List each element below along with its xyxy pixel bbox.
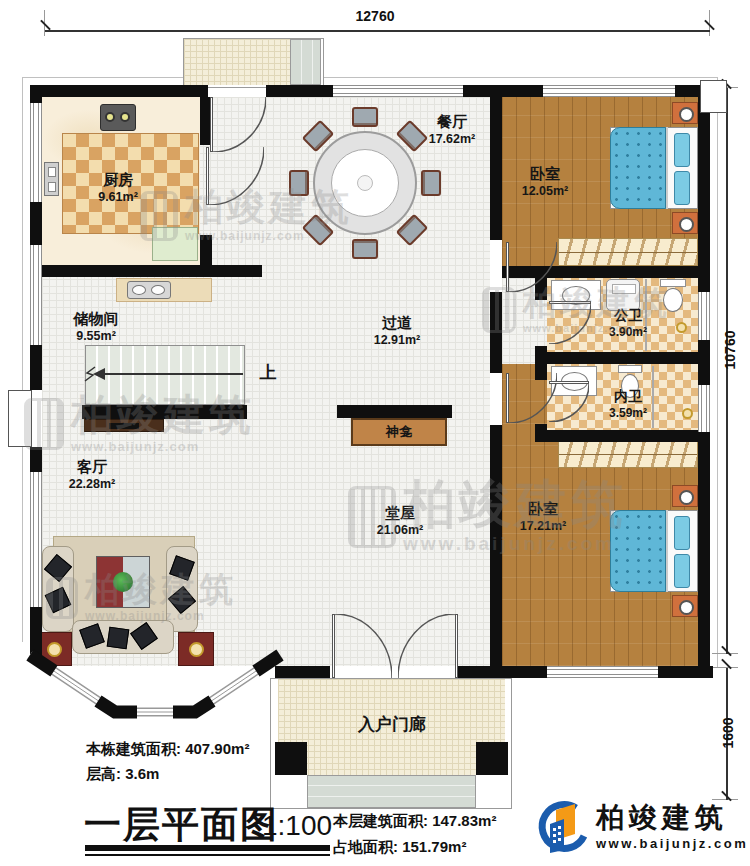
floor-area-label: 本层建筑面积: [333,812,428,829]
brand-logo-text: 柏竣建筑 [596,804,748,832]
floor-height-text: 层高: 3.6m [86,765,159,784]
entry-door-left-arc [335,614,392,678]
kitchen-sink-icon [44,162,59,196]
toilet-icon [660,279,686,287]
room-name: 卧室 [520,500,567,519]
window [30,103,42,202]
room-area: 17.21m² [520,519,567,535]
dimension-line-top [45,30,710,32]
wall-shrine [337,405,452,418]
eave-line-right [717,77,718,667]
room-name: 厨房 [98,171,138,190]
dim-tick [40,20,51,31]
toilet-bowl [663,288,683,312]
total-area-value: 407.90m² [185,740,249,757]
room-label-living: 客厅 22.28m² [69,458,116,492]
wall-publicbath-left [535,346,547,352]
stair-break-icon [84,366,96,382]
title-underline-thin [85,854,330,856]
dining-chair [289,170,309,196]
stove-icon [100,104,136,131]
back-porch [183,38,324,88]
total-area-label: 本栋建筑面积: [86,740,181,757]
nightstand [672,212,698,234]
kitchen-cabinet [152,227,198,261]
room-label-main-hall: 堂屋 21.06m² [377,504,424,538]
room-area: 12.91m² [374,333,421,349]
ensuite-door-arc [549,384,589,422]
burner-icon [105,112,115,122]
floor-height-label: 层高: [86,765,121,782]
tv-console [84,419,164,432]
wall-center-vertical [490,292,502,373]
shower-partition [652,366,654,428]
bed-pillow [674,516,690,550]
floor-plan-canvas: 12760 10760 1600 [0,0,750,866]
porch-steps [307,775,476,808]
toilet-icon [618,365,642,373]
room-area: 9.61m² [98,190,138,206]
eave-line-left [22,77,23,642]
title-underline-thick [85,845,330,851]
window [698,292,710,340]
tv-icon [109,423,139,429]
wall-niche [8,390,32,447]
room-area: 3.90m² [609,325,647,340]
brand-logo-url: www.baijunjz.com [596,836,748,851]
bed-sheet-line [666,127,668,209]
nightstand [672,595,698,617]
wall-exterior-left [30,345,42,390]
room-area: 9.55m² [74,329,119,345]
wall-bath-divider [535,352,710,364]
back-porch-floor [184,39,290,85]
window [30,245,42,345]
stairs-up-text: 上 [260,362,277,383]
flue-box [700,80,727,113]
room-name: 过道 [374,314,421,333]
room-label-dining: 餐厅 17.62m² [429,113,476,147]
plant-icon [113,572,133,592]
window [698,385,710,432]
entry-door-right-arc [398,614,455,678]
bed-pillow [674,171,690,205]
floor-area-text: 本层建筑面积: 147.83m² [333,812,496,831]
room-name: 餐厅 [429,113,476,132]
room-label-entry-porch: 入户门廊 [358,714,426,735]
back-porch-steps [290,39,321,85]
stairs-up-label: 上 [260,362,277,383]
porch-column [476,742,508,775]
room-area: 22.28m² [69,477,116,493]
room-label-storage: 储物间 9.55m² [74,310,119,344]
room-label-public-bath: 公卫 3.90m² [609,307,647,340]
shower-head-icon [676,322,687,333]
wall-kitchen-right [200,235,212,265]
room-name: 客厅 [69,458,116,477]
bay-window [22,648,288,722]
shrine-label: 神龛 [386,424,412,440]
burner-icon [120,112,130,122]
window [543,85,675,97]
staircase [85,345,245,405]
dimension-top-label: 12760 [300,8,450,24]
double-basin-icon [127,281,171,299]
wall-center-vertical [490,425,502,666]
publicbath-door-arc [549,304,591,344]
room-label-ensuite-bath: 内卫 3.59m² [609,388,647,421]
shower-detail [612,284,636,294]
dining-chair [352,239,378,259]
dimension-porch-label: 1600 [720,703,736,763]
room-area: 3.59m² [609,406,647,421]
wall-center-vertical [490,97,502,240]
wall-exterior-left [30,447,42,472]
wall-exterior-bottom [658,666,713,678]
shower-head-icon [682,408,693,419]
wall-exterior-left [30,85,42,103]
room-label-hallway: 过道 12.91m² [374,314,421,348]
room-label-bedroom2: 卧室 17.21m² [520,500,567,534]
bed-mattress [610,510,666,592]
eave-line-top [22,77,718,78]
wall-exterior-top [30,85,208,97]
window [547,666,658,678]
room-name: 内卫 [609,388,647,406]
back-door-arc [213,97,266,152]
room-name: 入户门廊 [358,714,426,735]
room-label-bedroom1: 卧室 12.05m² [522,165,569,199]
wall-exterior-bottom [457,666,547,678]
bedroom1-wardrobe [558,238,698,266]
room-area: 17.62m² [429,132,476,148]
dimension-right-label: 10760 [722,320,738,380]
wall-ensuite-bottom [535,430,710,442]
footprint-value: 151.79m² [402,838,466,855]
nightstand [672,485,698,507]
bed-pillow [674,554,690,588]
wall-exterior-right [698,340,710,385]
room-area: 12.05m² [522,184,569,200]
entry-door-right-leaf [455,614,458,678]
nightstand [672,102,698,124]
room-area: 21.06m² [377,523,424,539]
floor-area-value: 147.83m² [432,812,496,829]
shrine-text: 神龛 [386,424,412,440]
room-label-kitchen: 厨房 9.61m² [98,171,138,205]
entry-porch [270,678,512,809]
room-name: 公卫 [609,307,647,325]
dim-guide [712,667,738,668]
bedroom1-door-arc [509,242,557,292]
footprint-label: 占地面积: [333,838,398,855]
storage-counter [116,278,212,302]
stair-direction-line [103,373,243,375]
floor-height-value: 3.6m [125,765,159,782]
wall-ensuite-left [535,424,547,430]
wall-exterior-right [698,85,710,292]
sink-bowl [48,167,56,177]
dining-table-center [357,175,373,191]
room-name: 卧室 [522,165,569,184]
wall-exterior-left [30,202,42,245]
plan-scale: 1:100 [262,810,332,842]
bed-pillow [674,133,690,167]
room-name: 堂屋 [377,504,424,523]
plan-title: 一层平面图 [84,800,279,850]
bed-sheet-line [666,510,668,592]
bed-mattress [610,127,666,209]
bedroom2-wardrobe [558,440,698,468]
wall-exterior-top [463,85,543,97]
window [30,472,42,607]
window [333,85,463,97]
dim-guide [712,653,738,654]
brand-logo-icon [536,798,588,856]
total-area-text: 本栋建筑面积: 407.90m² [86,740,249,759]
sink-bowl [48,182,56,192]
wall-kitchen-bottom [30,265,262,277]
wall-exterior-top [266,85,333,97]
brand-logo: 柏竣建筑 www.baijunjz.com [536,798,748,856]
kitchen-door-arc [209,147,264,205]
sofa-cushion [107,627,130,650]
porch-column [275,742,307,775]
wall-stair-tv [82,405,247,419]
room-name: 储物间 [74,310,119,329]
dining-chair [421,170,441,196]
wall-exterior-right [698,432,710,668]
dining-chair [352,107,378,127]
footprint-text: 占地面积: 151.79m² [333,838,466,857]
